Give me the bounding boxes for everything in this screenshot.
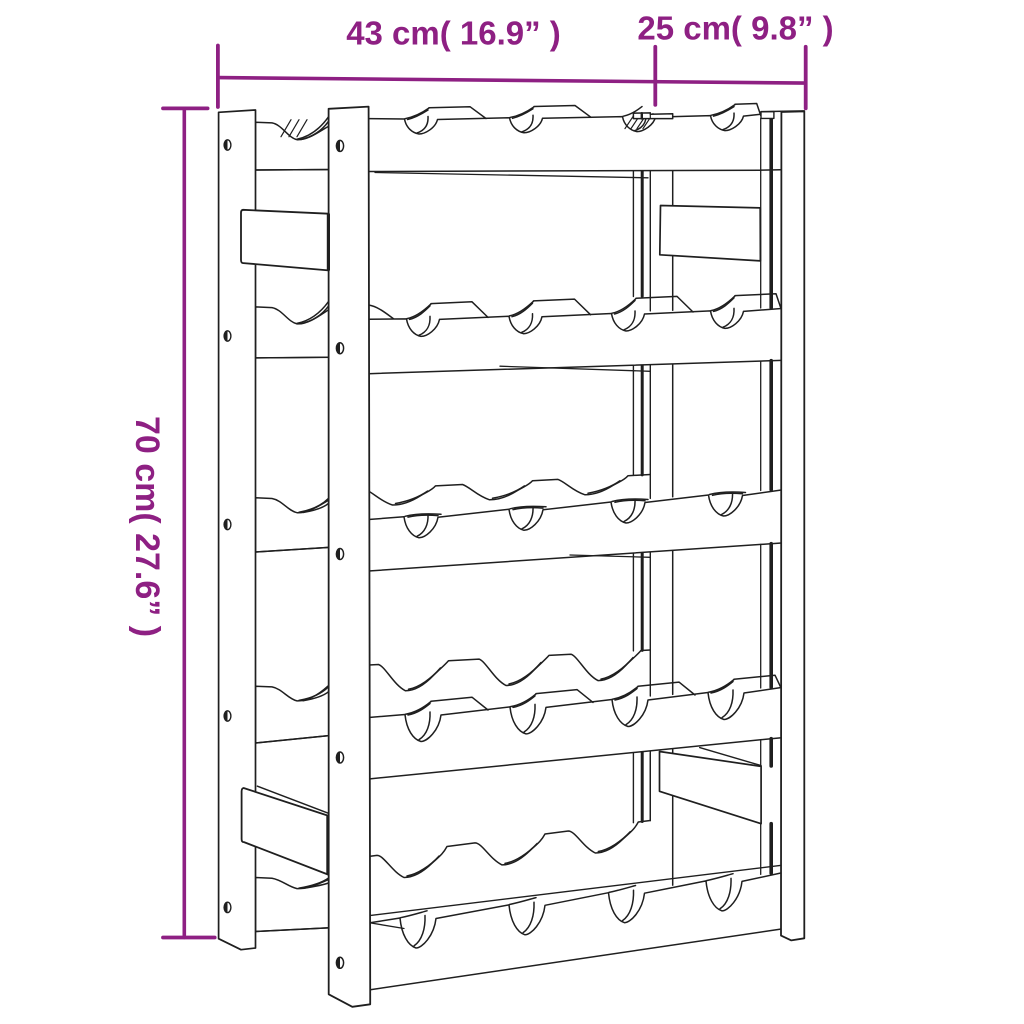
svg-text:43 cm( 16.9” ): 43 cm( 16.9” ) [346,15,561,52]
svg-text:70 cm( 27.6” ): 70 cm( 27.6” ) [128,416,166,637]
svg-text:25 cm( 9.8” ): 25 cm( 9.8” ) [637,10,833,47]
